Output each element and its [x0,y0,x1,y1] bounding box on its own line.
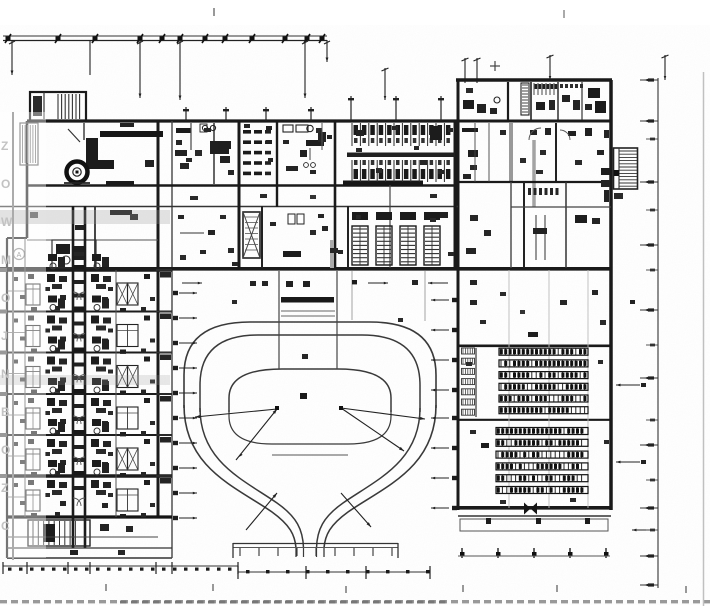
svg-text:Z: Z [1,139,8,153]
svg-text:O: O [1,291,10,305]
svg-text:Z: Z [1,481,8,495]
svg-text:J: J [1,329,8,343]
svg-text:O: O [1,443,10,457]
svg-text:M: M [1,253,11,267]
svg-text:O: O [1,177,10,191]
svg-text:C: C [1,519,10,533]
svg-text:B: B [1,405,10,419]
svg-text:N: N [1,367,10,381]
svg-text:W: W [1,215,13,229]
